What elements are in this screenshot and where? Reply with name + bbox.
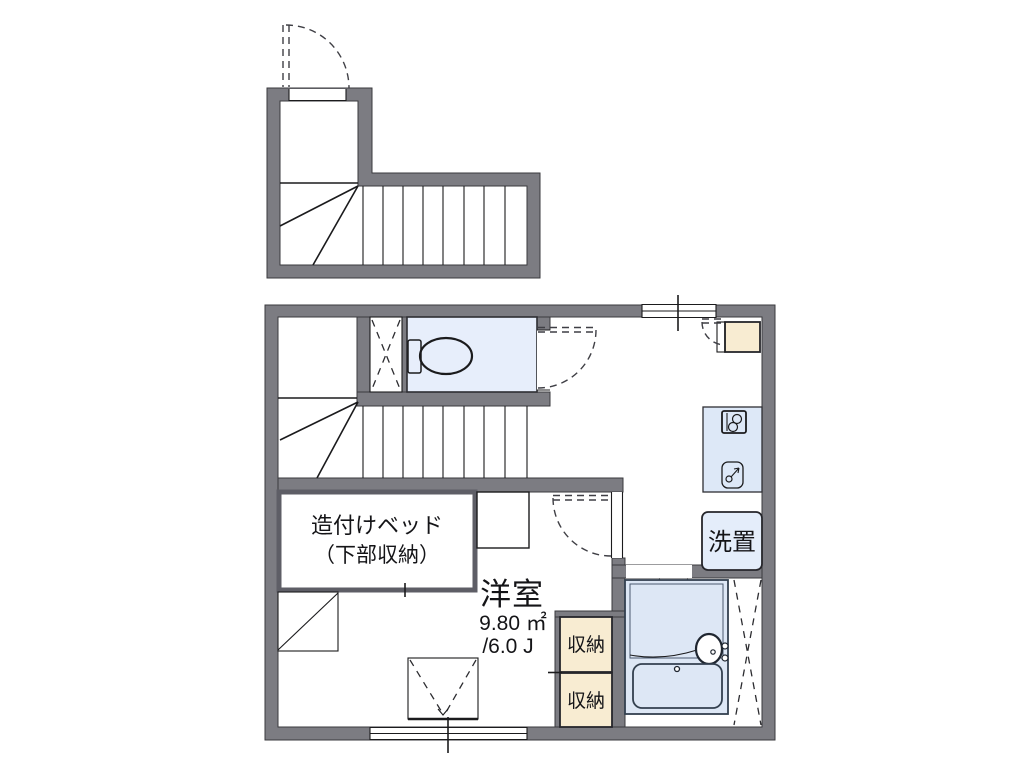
storage-label-upper: 収納 bbox=[567, 634, 605, 656]
floor-plan-page: 洗置 造付けベッド （下部収納） bbox=[0, 0, 1016, 772]
upper-stair-block bbox=[267, 25, 540, 278]
laundry-space: 洗置 bbox=[702, 512, 762, 570]
bathtub-icon bbox=[633, 664, 722, 708]
cabinet-door-swing bbox=[702, 319, 725, 345]
upper-stairs bbox=[280, 183, 505, 265]
room-area-m2: 9.80 ㎡ bbox=[479, 611, 547, 635]
bottom-window bbox=[370, 717, 527, 753]
bedroom-door bbox=[553, 492, 623, 558]
duct-void bbox=[734, 580, 761, 725]
storage-label-lower: 収納 bbox=[567, 690, 605, 712]
toilet-door-opening bbox=[537, 330, 550, 390]
entrance-door-swing bbox=[283, 25, 349, 88]
top-window bbox=[642, 295, 716, 331]
floor-plan-svg: 洗置 造付けベッド （下部収納） bbox=[0, 0, 1016, 772]
bedroom-door-opening bbox=[611, 492, 623, 558]
laundry-label: 洗置 bbox=[708, 529, 756, 556]
upper-entrance-opening bbox=[289, 89, 346, 101]
storage-upper: 収納 bbox=[560, 617, 612, 672]
desk-counter bbox=[477, 492, 529, 548]
bedroom-door-swing bbox=[553, 496, 611, 557]
kitchen-counter bbox=[703, 407, 762, 492]
main-unit: 洗置 造付けベッド （下部収納） bbox=[265, 295, 775, 753]
storage-lower: 収納 bbox=[560, 673, 612, 727]
toilet-room bbox=[407, 317, 596, 392]
bed-label-line2: （下部収納） bbox=[314, 544, 440, 567]
utility-cabinet bbox=[702, 319, 760, 352]
pipe-shaft bbox=[370, 317, 402, 392]
room-label: 洋室 9.80 ㎡ /6.0 J bbox=[479, 577, 547, 658]
room-area-jo: /6.0 J bbox=[482, 635, 533, 658]
bathroom bbox=[625, 565, 761, 725]
stairwell bbox=[278, 398, 527, 478]
built-in-bed: 造付けベッド （下部収納） bbox=[279, 492, 475, 597]
window-bay bbox=[408, 658, 478, 719]
room-name: 洋室 bbox=[480, 577, 544, 612]
corner-unit bbox=[278, 592, 338, 651]
bed-label-line1: 造付けベッド bbox=[311, 513, 443, 538]
